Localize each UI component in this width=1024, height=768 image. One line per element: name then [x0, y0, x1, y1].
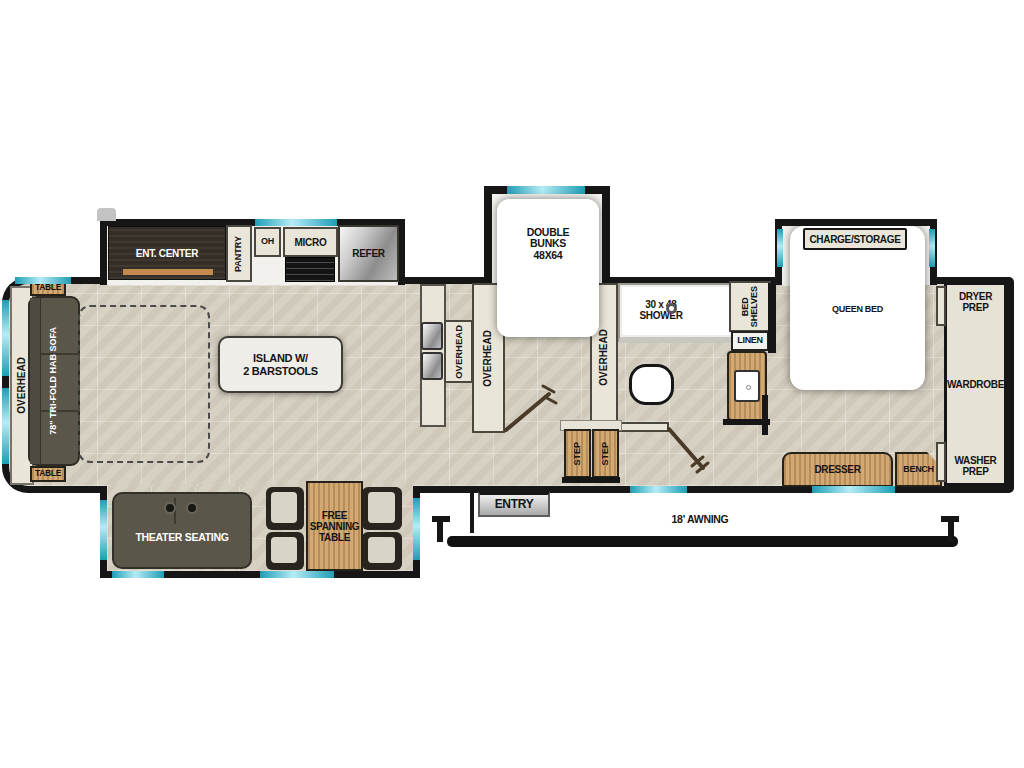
entry-label: ENTRY — [495, 498, 534, 511]
ent-center-label: ENT. CENTER — [136, 248, 198, 259]
kitchen-island: ISLAND W/ 2 BARSTOOLS — [218, 336, 343, 393]
front-table-top-label: TABLE — [35, 283, 61, 292]
kitchen-sink-lower — [421, 352, 443, 380]
linen-closet: LINEN — [731, 331, 769, 351]
refrigerator: REFER — [338, 225, 399, 282]
charge-storage: CHARGE/STORAGE — [803, 228, 907, 250]
chair-cushion — [271, 537, 297, 563]
vanity-drain — [746, 385, 751, 390]
theater-label-wrap: THEATER SEATING — [114, 518, 250, 558]
oh-label: OH — [261, 237, 274, 247]
dryer-prep-label: DRYER PREP — [947, 291, 1004, 313]
entry-step: ENTRY — [478, 491, 550, 517]
kitchen-sink-upper — [421, 322, 443, 350]
range-stove — [285, 257, 335, 282]
entertainment-center: ENT. CENTER — [108, 226, 226, 280]
chair-cushion — [368, 492, 395, 523]
double-bunks-label: DOUBLE BUNKS 48X64 — [497, 222, 599, 266]
overhead-divider-left-label: OVERHEAD — [483, 330, 494, 387]
bottom-slide-window-b2 — [260, 571, 334, 578]
charge-storage-label: CHARGE/STORAGE — [809, 234, 900, 245]
kitchen-overhead: OVERHEAD — [444, 320, 473, 383]
washer-prep-label: WASHER PREP — [947, 455, 1004, 477]
bottom-slide-window-right — [413, 498, 420, 560]
sofa-seam-2 — [40, 410, 80, 412]
closet-door-frame-top — [936, 286, 946, 326]
sofa-label: 78" TRI-FOLD HAB SOFA — [49, 327, 58, 435]
shower-drain — [666, 303, 677, 314]
awning-bar — [447, 536, 958, 547]
kitchen-slide-window — [255, 219, 337, 226]
dinette-chair-4 — [362, 532, 402, 570]
rv-floorplan: ENT. CENTER PANTRY OH MICRO REFER QUEEN … — [0, 0, 1024, 768]
bath-vanity — [727, 351, 767, 421]
theater-seating: THEATER SEATING — [112, 492, 252, 569]
theater-seating-label: THEATER SEATING — [135, 532, 228, 544]
sofa-seam-1 — [40, 353, 80, 355]
bed-slide-window-left — [777, 229, 783, 267]
dresser: DRESSER — [782, 452, 893, 487]
kitchen-overhead-label: OVERHEAD — [454, 325, 464, 379]
front-left-window-1 — [2, 300, 9, 376]
overhead-cabinet-oh: OH — [254, 227, 281, 257]
front-table-bottom-label: TABLE — [35, 469, 61, 478]
dinette-chair-1 — [266, 487, 304, 530]
free-table-label: FREE SPANNING TABLE — [310, 510, 360, 543]
dresser-label: DRESSER — [814, 464, 860, 475]
bunk-slide-window — [507, 186, 585, 194]
bed-shelves-label: BED SHELVES — [741, 286, 760, 327]
overhead-divider-right-label: OVERHEAD — [599, 329, 610, 386]
awning-label: 18' AWNING — [672, 514, 729, 526]
bottom-slide-window-b1 — [112, 571, 164, 578]
shower-label: 30 x 48 SHOWER — [622, 293, 700, 327]
bath-bedroom-wall-upper — [768, 283, 776, 353]
double-bunks-bed — [497, 199, 599, 337]
awning-bracket-left-stem — [437, 516, 443, 542]
cupholder-left — [164, 502, 176, 514]
sofa-backrest — [30, 298, 41, 464]
rear-closet: DRYER PREP WARDROBE WASHER PREP — [944, 282, 1007, 486]
pantry: PANTRY — [226, 225, 252, 282]
bottom-wall-window-1 — [630, 486, 687, 493]
chair-cushion — [368, 537, 395, 563]
awning-label-wrap: 18' AWNING — [600, 512, 800, 528]
dinette-chair-2 — [266, 532, 304, 570]
bed-slide-window-right — [929, 229, 935, 267]
chair-cushion — [271, 492, 297, 523]
ent-center-shelf — [123, 269, 213, 275]
step-left: STEP — [564, 429, 591, 478]
bed-shelves: BED SHELVES — [729, 281, 771, 332]
refer-label: REFER — [352, 248, 384, 259]
roof-vent — [97, 208, 116, 221]
bottom-slide-window-left — [100, 500, 107, 560]
bottom-wall-window-2 — [812, 486, 895, 493]
vanity-sink — [734, 370, 760, 402]
step-right: STEP — [592, 429, 619, 478]
microwave: MICRO — [283, 227, 338, 257]
step-left-label: STEP — [573, 442, 582, 466]
entry-door-post — [470, 489, 474, 533]
bench-label: BENCH — [903, 465, 934, 475]
toilet — [629, 364, 674, 405]
front-top-window — [15, 277, 71, 284]
queen-bed-label: QUEEN BED — [790, 300, 925, 320]
tri-fold-sofa: 78" TRI-FOLD HAB SOFA — [28, 296, 80, 466]
free-spanning-table: FREE SPANNING TABLE — [306, 481, 363, 571]
pantry-label: PANTRY — [234, 236, 243, 272]
dinette-chair-3 — [362, 487, 402, 530]
step-right-label: STEP — [601, 442, 610, 466]
step-threshold — [562, 477, 620, 483]
front-left-window-2 — [2, 388, 9, 464]
cupholder-right — [186, 502, 198, 514]
bath-bedroom-wall-stub — [762, 395, 768, 435]
wardrobe-label: WARDROBE — [947, 379, 1004, 390]
sofa-bed-outline — [78, 305, 210, 463]
front-overhead-label: OVERHEAD — [17, 357, 28, 414]
island-label: ISLAND W/ 2 BARSTOOLS — [243, 352, 318, 376]
bath-door-frame — [617, 422, 669, 432]
awning-bracket-right-stem — [948, 516, 954, 542]
front-table-bottom: TABLE — [30, 466, 66, 482]
micro-label: MICRO — [295, 237, 327, 248]
linen-label: LINEN — [737, 336, 763, 346]
closet-door-frame-bottom — [936, 442, 946, 482]
